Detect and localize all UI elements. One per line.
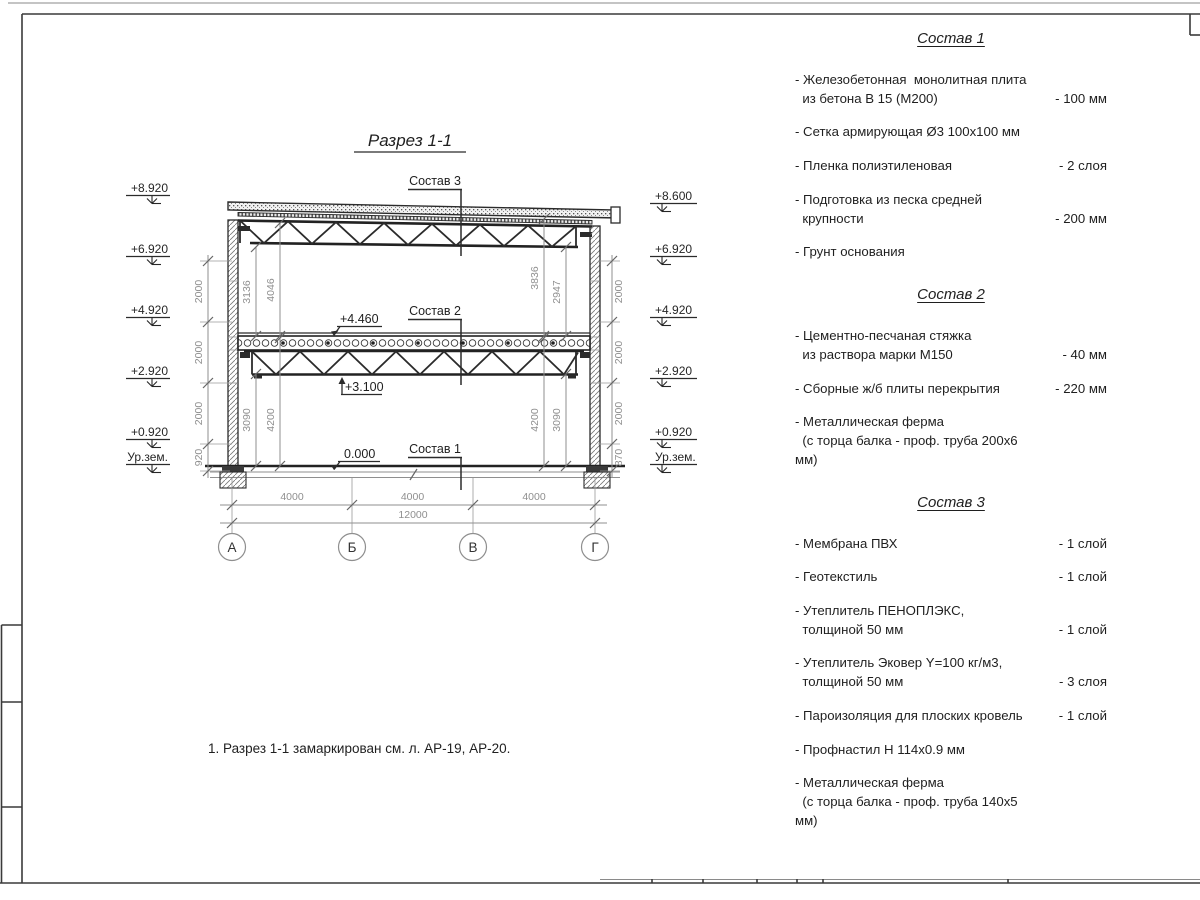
right-wall xyxy=(590,226,600,466)
svg-text:+6.920: +6.920 xyxy=(131,242,168,256)
composition-3-item: - Металлическая ферма (с торца балка - п… xyxy=(795,774,1107,830)
composition-3-item: - Профнастил Н 114х0.9 мм xyxy=(795,741,1107,760)
svg-text:Состав 3: Состав 3 xyxy=(409,174,461,188)
composition-2-item: - Цементно-песчаная стяжка из раствора м… xyxy=(795,327,1107,364)
axis-label-g: Г xyxy=(591,540,599,555)
svg-text:Ур.зем.: Ур.зем. xyxy=(127,450,168,464)
composition-section-1: Состав 1 - Железобетонная монолитная пли… xyxy=(795,30,1107,262)
left-elevation-marks: +8.920 +6.920 +4.920 +2.920 +0.920 Ур.зе… xyxy=(126,181,170,473)
composition-3-item: - Мембрана ПВХ - 1 слой xyxy=(795,535,1107,554)
svg-text:Состав 1: Состав 1 xyxy=(409,442,461,456)
svg-text:4000: 4000 xyxy=(280,491,304,503)
svg-text:2000: 2000 xyxy=(193,402,205,426)
svg-text:+2.920: +2.920 xyxy=(655,364,692,378)
right-elevation-marks: +8.600 +6.920 +4.920 +2.920 +0.920 Ур.зе… xyxy=(650,189,697,473)
composition-notes: Состав 1 - Железобетонная монолитная пли… xyxy=(795,30,1107,855)
middle-floor-slab xyxy=(238,333,590,350)
composition-1-title: Состав 1 xyxy=(795,30,1107,47)
composition-3-item: - Геотекстиль - 1 слой xyxy=(795,568,1107,587)
svg-text:+2.920: +2.920 xyxy=(131,364,168,378)
left-wall xyxy=(228,220,238,466)
corner-format-box xyxy=(1190,14,1200,35)
svg-text:2000: 2000 xyxy=(613,280,625,304)
truss-bearing-left xyxy=(238,226,250,231)
composition-section-3: Состав 3 - Мембрана ПВХ - 1 слой - Геоте… xyxy=(795,494,1107,831)
svg-text:+3.100: +3.100 xyxy=(345,380,384,394)
axis-label-b: Б xyxy=(348,540,357,555)
composition-1-item: - Грунт основания xyxy=(795,243,1107,262)
level-3100-label: +3.100 xyxy=(339,377,384,395)
foundation-left xyxy=(220,472,246,488)
foundation-right xyxy=(584,472,610,488)
middle-truss xyxy=(240,351,590,379)
composition-2-item: - Сборные ж/б плиты перекрытия - 220 мм xyxy=(795,380,1107,399)
svg-text:+6.920: +6.920 xyxy=(655,242,692,256)
svg-text:+4.920: +4.920 xyxy=(655,303,692,317)
svg-text:0.000: 0.000 xyxy=(344,447,375,461)
svg-text:+0.920: +0.920 xyxy=(131,425,168,439)
composition-3-item: - Пароизоляция для плоских кровель - 1 с… xyxy=(795,707,1107,726)
svg-text:3090: 3090 xyxy=(241,408,253,432)
svg-text:+4.920: +4.920 xyxy=(131,303,168,317)
svg-text:4200: 4200 xyxy=(265,408,277,432)
lower-interior-dims: 3090 4200 4200 3090 xyxy=(241,333,571,471)
svg-text:3836: 3836 xyxy=(529,266,541,290)
roof-edge-cap xyxy=(611,207,620,223)
roof-truss xyxy=(238,221,592,248)
composition-2-item: - Металлическая ферма (с торца балка - п… xyxy=(795,413,1107,469)
svg-text:920: 920 xyxy=(193,449,205,467)
right-dimension-chain: 2000 2000 2000 870 xyxy=(598,255,625,478)
composition-3-title: Состав 3 xyxy=(795,494,1107,511)
svg-text:Состав 2: Состав 2 xyxy=(409,304,461,318)
svg-text:+0.920: +0.920 xyxy=(655,425,692,439)
svg-text:2000: 2000 xyxy=(193,280,205,304)
composition-3-item: - Утеплитель Эковер Y=100 кг/м3, толщино… xyxy=(795,654,1107,691)
axis-label-a: А xyxy=(227,540,236,555)
upper-interior-dims: 3136 4046 3836 2947 xyxy=(241,214,571,341)
svg-text:+8.600: +8.600 xyxy=(655,189,692,203)
composition-1-item: - Железобетонная монолитная плита из бет… xyxy=(795,71,1107,108)
left-margin-stamp-boxes xyxy=(2,625,23,883)
composition-1-item: - Сетка армирующая Ø3 100х100 мм xyxy=(795,123,1107,142)
composition-3-item: - Утеплитель ПЕНОПЛЭКС, толщиной 50 мм -… xyxy=(795,602,1107,639)
svg-text:+8.920: +8.920 xyxy=(131,181,168,195)
svg-text:3090: 3090 xyxy=(551,408,563,432)
svg-text:2000: 2000 xyxy=(613,341,625,365)
svg-text:Ур.зем.: Ур.зем. xyxy=(655,450,696,464)
svg-text:3136: 3136 xyxy=(241,280,253,304)
svg-text:4200: 4200 xyxy=(529,408,541,432)
svg-text:4046: 4046 xyxy=(265,278,277,302)
svg-text:2000: 2000 xyxy=(193,341,205,365)
svg-text:12000: 12000 xyxy=(398,509,427,521)
left-dimension-chain: 2000 2000 2000 920 xyxy=(193,255,232,478)
svg-text:+4.460: +4.460 xyxy=(340,312,379,326)
drawing-title: Разрез 1-1 xyxy=(368,131,452,150)
sheet-note: 1. Разрез 1-1 замаркирован см. л. АР-19,… xyxy=(208,741,510,756)
composition-1-item: - Подготовка из песка средней крупности … xyxy=(795,191,1107,228)
svg-text:4000: 4000 xyxy=(401,491,425,503)
axis-bubbles: А Б В Г xyxy=(219,534,609,561)
svg-text:2000: 2000 xyxy=(613,402,625,426)
composition-1-item: - Пленка полиэтиленовая - 2 слоя xyxy=(795,157,1107,176)
bottom-dimensions: 4000 4000 4000 12000 xyxy=(220,478,607,534)
axis-label-v: В xyxy=(468,540,477,555)
composition-section-2: Состав 2 - Цементно-песчаная стяжка из р… xyxy=(795,286,1107,469)
svg-text:870: 870 xyxy=(613,449,625,467)
composition-2-title: Состав 2 xyxy=(795,286,1107,303)
svg-text:2947: 2947 xyxy=(551,280,563,304)
svg-text:4000: 4000 xyxy=(522,491,546,503)
